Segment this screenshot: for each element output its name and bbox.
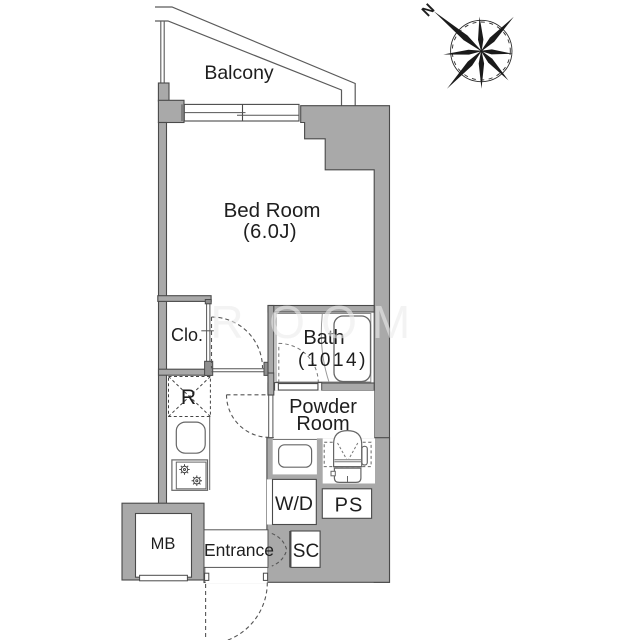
svg-text:SC: SC	[293, 541, 319, 562]
svg-text:R: R	[181, 386, 196, 409]
svg-text:Balcony: Balcony	[204, 62, 274, 84]
svg-text:Bed Room: Bed Room	[224, 199, 321, 222]
svg-text:MB: MB	[151, 535, 176, 553]
svg-text:M: M	[372, 296, 410, 348]
svg-text:(1014): (1014)	[298, 350, 368, 371]
svg-text:Clo.: Clo.	[171, 325, 203, 345]
svg-text:(6.0J): (6.0J)	[243, 221, 297, 243]
svg-text:W/D: W/D	[275, 493, 313, 515]
svg-text:O: O	[321, 296, 357, 348]
svg-text:R: R	[210, 296, 243, 348]
svg-text:O: O	[269, 296, 305, 348]
svg-text:Entrance: Entrance	[204, 540, 274, 560]
svg-text:PS: PS	[335, 495, 364, 517]
